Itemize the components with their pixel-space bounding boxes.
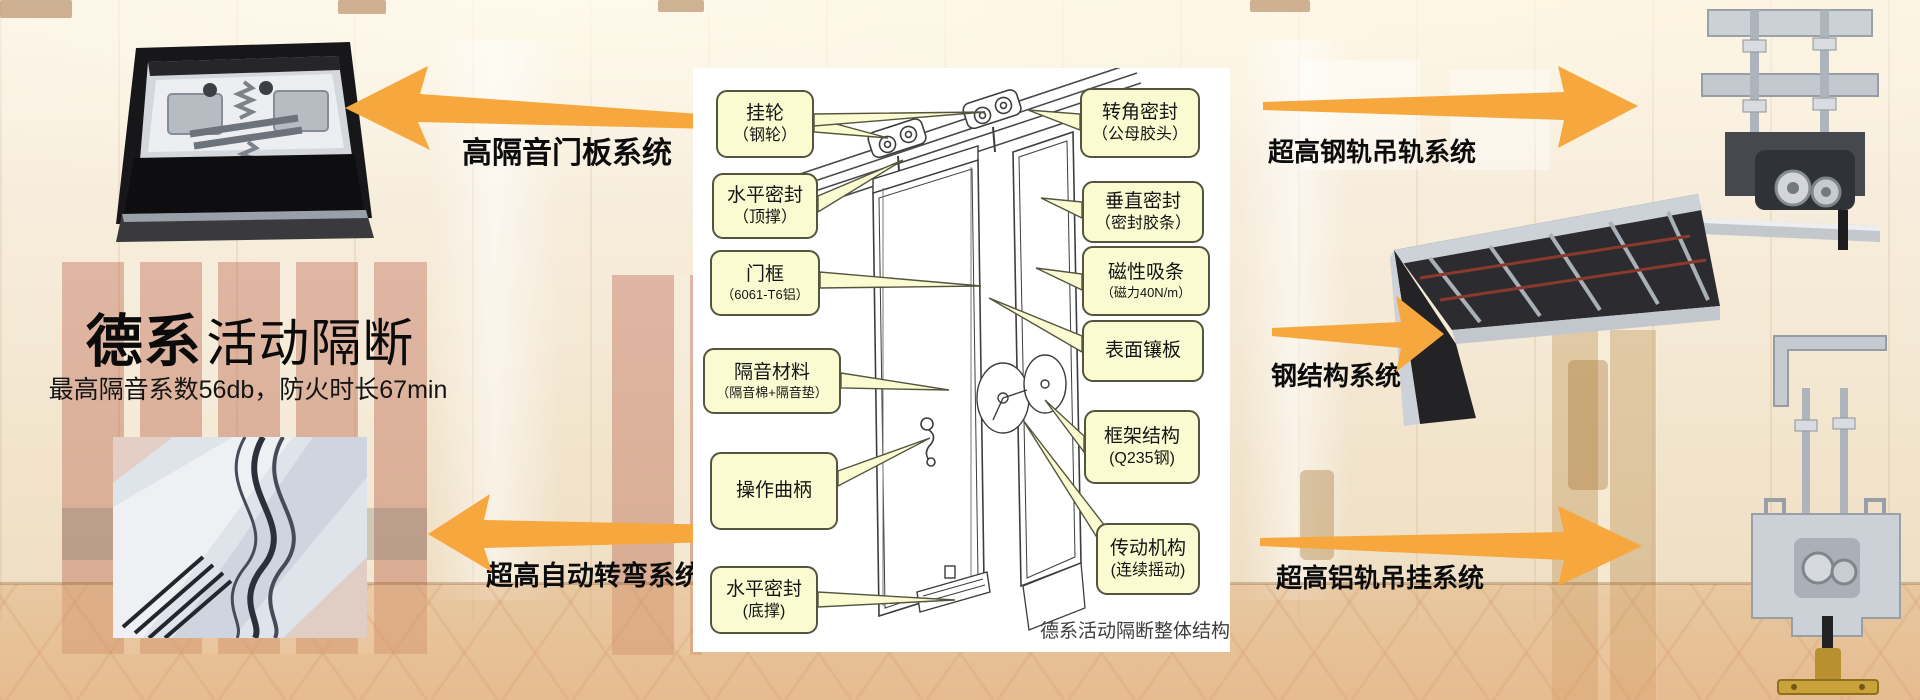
brand-title: 德系 活动隔断 (55, 296, 445, 378)
brand-title-bold: 德系 (86, 310, 202, 374)
callout-line1: 挂轮 (746, 102, 784, 127)
callout-frame-structure: 框架结构 (Q235钢) (1084, 410, 1200, 484)
arrow-right-bottom-icon (1256, 498, 1648, 588)
callout-line2: （顶撑） (733, 208, 797, 228)
callout-line1: 磁性吸条 (1108, 261, 1184, 286)
callout-line2: （密封胶条） (1095, 214, 1191, 234)
arrow-right-middle-icon (1268, 292, 1448, 377)
callout-line1: 表面镶板 (1105, 339, 1181, 364)
callout-door-frame: 门框 （6061-T6铝） (710, 250, 820, 316)
callout-line2: （公母胶头） (1092, 125, 1188, 145)
callout-line2: (连续摇动) (1111, 561, 1186, 581)
ceiling-beam-decor (658, 0, 704, 12)
callout-line1: 水平密封 (726, 578, 802, 603)
callout-line1: 转角密封 (1102, 101, 1178, 126)
callout-line1: 操作曲柄 (736, 479, 812, 504)
callout-line2: （隔音棉+隔音垫） (716, 385, 828, 401)
callout-horizontal-seal-top: 水平密封 （顶撑） (712, 173, 818, 239)
aluminum-curve-profile-photo (113, 437, 367, 638)
callout-line2: （钢轮） (733, 126, 797, 146)
callout-horizontal-seal-bottom: 水平密封 (底撑) (710, 566, 818, 634)
callout-line2: （6061-T6铝） (721, 287, 808, 303)
callout-magnetic-strip: 磁性吸条 （磁力40N/m） (1082, 246, 1210, 316)
arrow-right-top-icon (1258, 62, 1643, 152)
callout-surface-panel: 表面镶板 (1082, 320, 1204, 382)
callout-line1: 隔音材料 (734, 361, 810, 386)
callout-line2: (Q235钢) (1109, 449, 1175, 469)
callout-line1: 门框 (746, 263, 784, 288)
callout-operating-crank: 操作曲柄 (710, 452, 838, 530)
brand-title-rest: 活动隔断 (206, 315, 414, 372)
callout-line2: (底撑) (743, 602, 786, 622)
callout-corner-seal: 转角密封 （公母胶头） (1080, 88, 1200, 158)
callout-line1: 传动机构 (1110, 537, 1186, 562)
brand-subtitle: 最高隔音系数56db，防火时长67min (28, 370, 468, 406)
callout-line1: 水平密封 (727, 184, 803, 209)
aluminum-rail-hanger-photo (1736, 328, 1916, 700)
callout-line1: 框架结构 (1104, 425, 1180, 450)
callout-vertical-seal: 垂直密封 （密封胶条） (1082, 181, 1204, 243)
callout-hanging-wheel: 挂轮 （钢轮） (716, 90, 814, 158)
diagram-caption: 德系活动隔断整体结构 (1040, 616, 1235, 643)
slide-canvas: 高隔音门板系统 超高自动转弯系统 超高钢轨吊轨系统 钢结构系统 超高铝轨吊挂系统… (0, 0, 1920, 700)
callout-sound-insulation-material: 隔音材料 （隔音棉+隔音垫） (703, 348, 841, 414)
callout-line2: （磁力40N/m） (1101, 285, 1191, 301)
callout-drive-mechanism: 传动机构 (连续摇动) (1096, 523, 1200, 595)
ceiling-beam-decor (1250, 0, 1310, 12)
callout-line1: 垂直密封 (1105, 190, 1181, 215)
ceiling-beam-decor (0, 0, 72, 18)
